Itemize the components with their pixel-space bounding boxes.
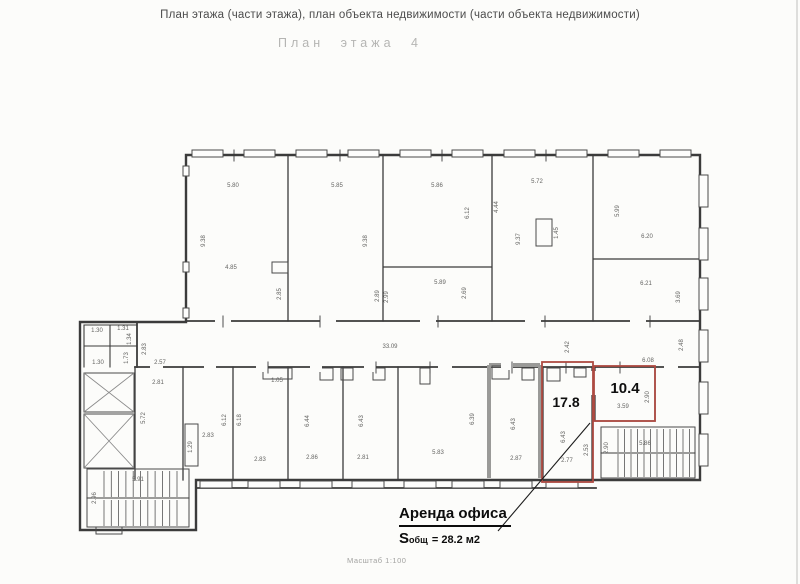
room-dimension-label: 2.99 [384, 291, 390, 303]
room-dimension-label: 6.43 [561, 431, 567, 443]
room-dimension-label: 6.21 [640, 281, 652, 287]
window [504, 150, 535, 157]
window [699, 330, 708, 362]
room-dimension-label: 5.89 [434, 280, 446, 286]
room-dimension-label: 5.99 [615, 205, 621, 217]
window [699, 382, 708, 414]
walls [80, 155, 700, 530]
window [192, 150, 223, 157]
room-dimension-label: 2.83 [142, 343, 148, 355]
room-dimension-label: 1.05 [271, 378, 283, 384]
room-dimension-label: 3.69 [676, 291, 682, 303]
stair-right [601, 427, 695, 478]
room-dimension-label: 9.38 [201, 235, 207, 247]
room-dimension-label: 5.86 [431, 183, 443, 189]
room-dimension-label: 3.59 [617, 404, 629, 410]
lease-title: Аренда офиса [399, 505, 511, 527]
window [699, 278, 708, 310]
window [244, 150, 275, 157]
area-label-10-4: 10.4 [610, 380, 640, 397]
window [300, 481, 332, 488]
room-dimension-label: 4.44 [494, 201, 500, 213]
room-dimension-label: 6.08 [642, 358, 654, 364]
room-dimension-label: 2.81 [152, 380, 164, 386]
room-dimension-label: 1.30 [92, 360, 104, 366]
room-dimension-label: 2.77 [561, 458, 573, 464]
room-dimension-label: 6.12 [465, 207, 471, 219]
room-dimension-label: 2.89 [375, 290, 381, 302]
room-dimension-label: 4.85 [225, 265, 237, 271]
room-dimension-label: 6.44 [305, 415, 311, 427]
room-dimension-label: 2.81 [357, 455, 369, 461]
room-dimension-label: 2.57 [154, 360, 166, 366]
room-dimension-labels: 5.809.384.852.855.859.382.895.866.124.44… [91, 179, 685, 504]
window [452, 481, 484, 488]
room-dimension-label: 6.20 [641, 234, 653, 240]
room-dimension-label: 5.85 [331, 183, 343, 189]
room-dimension-label: 1.30 [91, 328, 103, 334]
room-dimension-label: 2.90 [604, 442, 610, 454]
room-dimension-label: 5.86 [639, 441, 651, 447]
window [660, 150, 691, 157]
room-dimension-label: 2.48 [679, 339, 685, 351]
elevator-shafts [84, 373, 134, 468]
window [699, 175, 708, 207]
window [452, 150, 483, 157]
room-dimension-label: 6.39 [470, 413, 476, 425]
room-dimension-label: 1.31 [117, 326, 129, 332]
room-dimension-label: 6.43 [511, 418, 517, 430]
room-dimension-label: 2.42 [565, 341, 571, 353]
room-dimension-label: 6.18 [237, 414, 243, 426]
outer-wall [80, 155, 700, 530]
window [556, 150, 587, 157]
room-dimension-label: 6.12 [222, 414, 228, 426]
window [699, 228, 708, 260]
room-dimension-label: 6.43 [359, 415, 365, 427]
window [248, 481, 280, 488]
floor-plan: 5.809.384.852.855.859.382.895.866.124.44… [0, 0, 800, 584]
room-dimension-label: 33.09 [382, 344, 398, 350]
room-dimension-label: 5.91 [132, 477, 144, 483]
room-dimension-label: 1.29 [188, 441, 194, 453]
room-dimension-label: 2.87 [510, 456, 522, 462]
area-value: = 28.2 м2 [432, 534, 480, 546]
window [404, 481, 436, 488]
room-dimension-label: 2.53 [584, 444, 590, 456]
window [608, 150, 639, 157]
window [296, 150, 327, 157]
room-dimension-label: 1.34 [127, 333, 133, 345]
window [500, 481, 532, 488]
area-prefix: S [399, 530, 409, 547]
room-dimension-label: 2.85 [277, 288, 283, 300]
window [699, 434, 708, 466]
room-dimension-label: 2.83 [202, 433, 214, 439]
area-label-17-8: 17.8 [552, 394, 579, 410]
room-dimension-label: 1.45 [554, 227, 560, 239]
area-subscript: общ [409, 535, 428, 545]
room-dimension-label: 5.72 [141, 412, 147, 424]
room-dimension-label: 2.83 [254, 457, 266, 463]
room-dimension-label: 9.37 [516, 233, 522, 245]
room-dimension-label: 2.90 [645, 391, 651, 403]
scan-edge [796, 0, 798, 584]
lease-area: Sобщ = 28.2 м2 [399, 530, 511, 547]
room-dimension-label: 5.72 [531, 179, 543, 185]
room-dimension-label: 5.80 [227, 183, 239, 189]
scale-label: Масштаб 1:100 [347, 556, 406, 565]
room-dimension-label: 2.96 [92, 492, 98, 504]
room-dimension-label: 1.73 [124, 352, 130, 364]
room-dimension-label: 2.86 [306, 455, 318, 461]
room-dimension-label: 5.83 [432, 450, 444, 456]
window [400, 150, 431, 157]
leader-line [498, 423, 590, 531]
fixtures [183, 166, 586, 466]
room-dimension-label: 9.38 [363, 235, 369, 247]
lease-annotation: Аренда офиса Sобщ = 28.2 м2 [399, 505, 511, 547]
door-openings [150, 317, 678, 395]
window [348, 150, 379, 157]
window [200, 481, 232, 488]
room-dimension-label: 2.69 [462, 287, 468, 299]
window [352, 481, 384, 488]
